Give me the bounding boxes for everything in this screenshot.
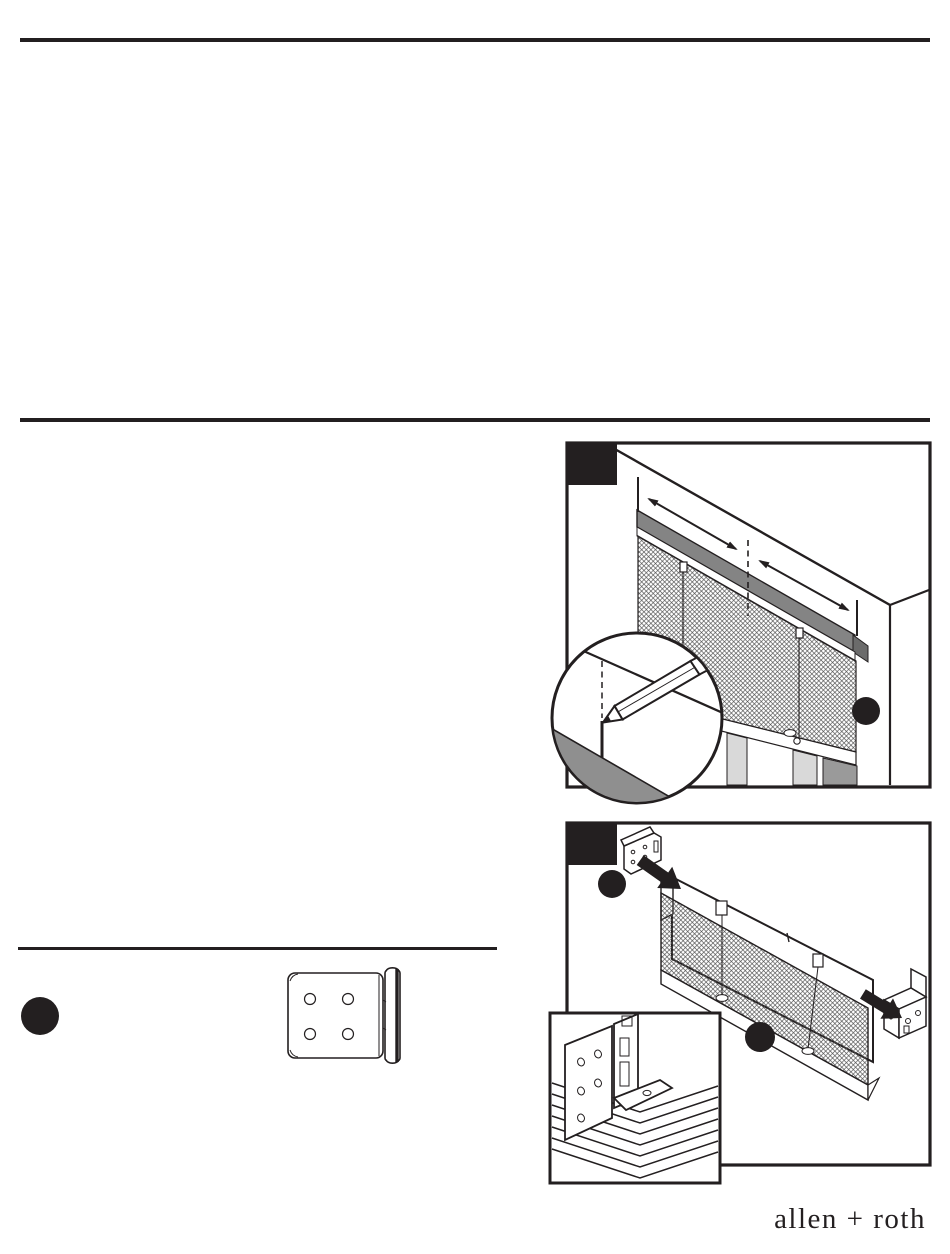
parts-callout-dot (21, 997, 59, 1035)
section-divider-rule (20, 418, 930, 422)
instruction-page: allen + roth (0, 0, 950, 1254)
mounting-bracket-top-view (275, 950, 415, 1080)
brand-logo: allen + roth (774, 1203, 926, 1236)
callout-dot (852, 697, 880, 725)
step-badge-square (567, 823, 617, 865)
callout-dot-center (745, 1022, 775, 1052)
corner-detail-inset (550, 1013, 720, 1183)
figure-measure-window (540, 425, 940, 815)
callout-dot-left (598, 870, 626, 898)
parts-section-divider-rule (18, 947, 497, 950)
figure-attach-brackets (540, 815, 940, 1195)
top-divider-rule (20, 38, 930, 42)
step-badge-square (567, 443, 617, 485)
